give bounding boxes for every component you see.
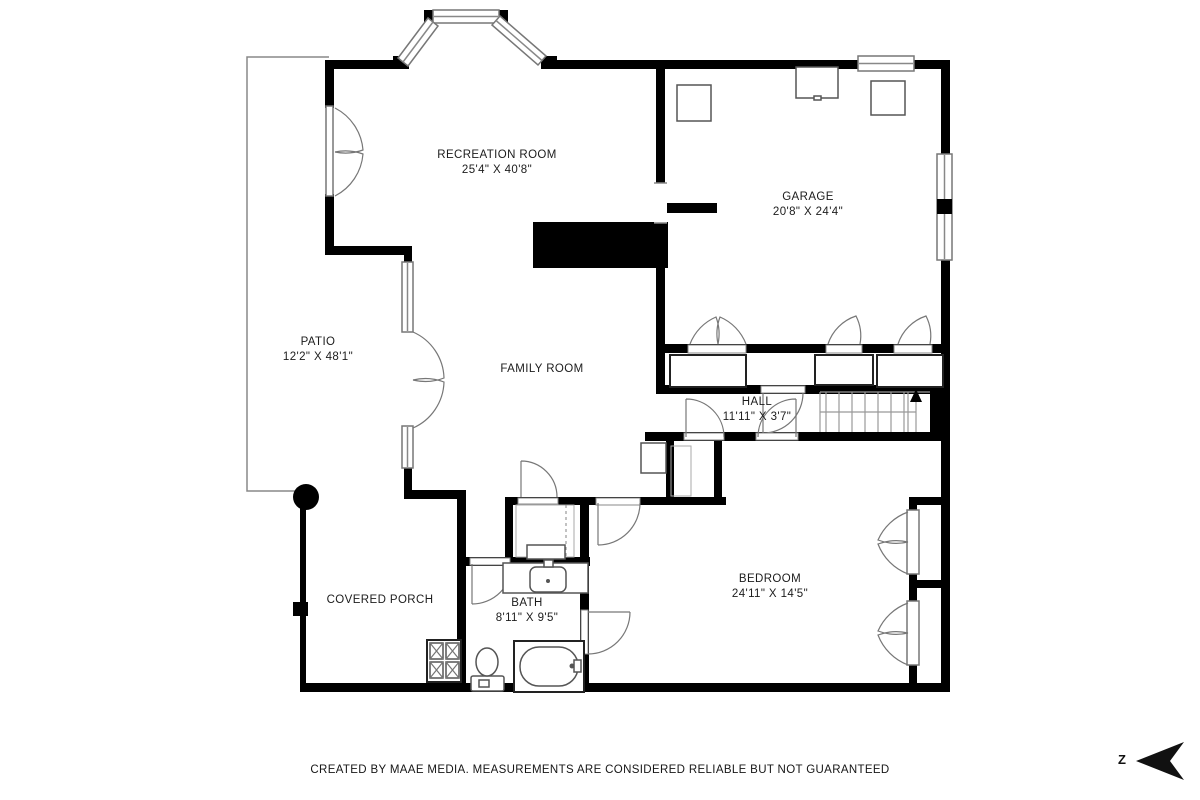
room-name: COVERED PORCH bbox=[327, 594, 434, 606]
garage-top-window bbox=[858, 56, 914, 71]
bedroom-doors bbox=[581, 498, 640, 654]
room-dims: 20'8" X 24'4" bbox=[773, 205, 843, 220]
patio-outline bbox=[247, 57, 329, 491]
shower bbox=[516, 505, 574, 559]
vanity-sink bbox=[503, 560, 588, 593]
garage-right-window bbox=[937, 154, 952, 260]
room-name: BEDROOM bbox=[739, 573, 801, 585]
garage-steps bbox=[670, 355, 943, 387]
footer-disclaimer: CREATED BY MAAE MEDIA. MEASUREMENTS ARE … bbox=[0, 764, 1200, 776]
porch-equipment-grid bbox=[427, 640, 461, 682]
family-room-west-windows bbox=[402, 262, 413, 468]
room-dims: 12'2" X 48'1" bbox=[283, 350, 353, 365]
garage-equipment bbox=[677, 67, 905, 121]
room-label-hall: HALL 11'11" X 3'7" bbox=[723, 395, 791, 425]
rec-garage-opening bbox=[654, 183, 667, 223]
shower-door bbox=[518, 461, 558, 504]
room-label-bath: BATH 8'11" X 9'5" bbox=[496, 596, 559, 626]
room-name: BATH bbox=[511, 597, 542, 609]
room-label-bedroom: BEDROOM 24'11" X 14'5" bbox=[732, 572, 808, 602]
recreation-room-french-doors bbox=[326, 106, 363, 196]
floorplan-drawing bbox=[0, 0, 1200, 800]
toilet bbox=[471, 648, 504, 691]
floorplan-page: RECREATION ROOM 25'4" X 40'8" GARAGE 20'… bbox=[0, 0, 1200, 800]
room-name: PATIO bbox=[301, 336, 336, 348]
north-arrow-letter: Z bbox=[1118, 752, 1126, 767]
room-name: GARAGE bbox=[782, 191, 834, 203]
room-dims: 11'11" X 3'7" bbox=[723, 410, 791, 425]
room-dims: 24'11" X 14'5" bbox=[732, 587, 808, 602]
room-name: HALL bbox=[742, 396, 772, 408]
room-label-garage: GARAGE 20'8" X 24'4" bbox=[773, 190, 843, 220]
room-dims: 8'11" X 9'5" bbox=[496, 611, 559, 626]
family-room-patio-doors bbox=[413, 332, 444, 428]
room-dims: 25'4" X 40'8" bbox=[437, 163, 557, 178]
room-name: FAMILY ROOM bbox=[500, 363, 583, 375]
room-label-recreation-room: RECREATION ROOM 25'4" X 40'8" bbox=[437, 148, 557, 178]
bay-window bbox=[398, 10, 546, 66]
bathtub bbox=[514, 641, 584, 692]
room-label-patio: PATIO 12'2" X 48'1" bbox=[283, 335, 353, 365]
porch-column bbox=[293, 484, 319, 510]
staircase bbox=[820, 389, 930, 432]
fireplace bbox=[533, 222, 668, 268]
bedroom-casement-windows bbox=[878, 512, 908, 665]
room-label-covered-porch: COVERED PORCH bbox=[327, 593, 434, 608]
room-label-family-room: FAMILY ROOM bbox=[500, 362, 583, 377]
room-name: RECREATION ROOM bbox=[437, 149, 557, 161]
